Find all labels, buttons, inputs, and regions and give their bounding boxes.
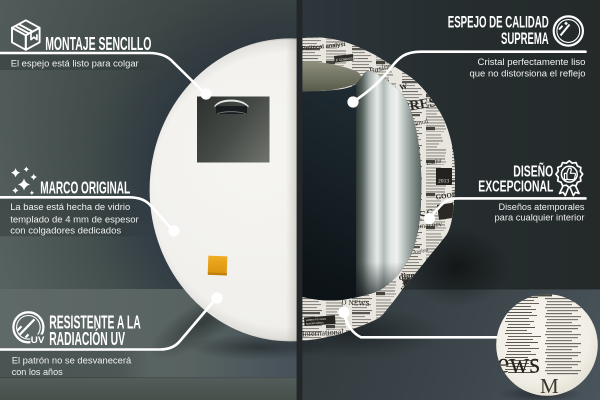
svg-text:RADIACIÓN UV: RADIACIÓN UV xyxy=(49,328,125,349)
svg-text:para cualquier interior: para cualquier interior xyxy=(495,213,586,224)
svg-text:con colgadores dedicados: con colgadores dedicados xyxy=(10,226,121,237)
svg-text:EXCEPCIONAL: EXCEPCIONAL xyxy=(478,179,553,196)
svg-text:con los años: con los años xyxy=(12,367,63,378)
svg-text:Diseños atemporales: Diseños atemporales xyxy=(499,202,585,213)
svg-text:UV: UV xyxy=(31,335,46,345)
svg-text:El patrón no se desvanecerá: El patrón no se desvanecerá xyxy=(12,356,132,367)
svg-text:2013: 2013 xyxy=(438,179,449,185)
svg-text:SUPREMA: SUPREMA xyxy=(501,30,549,48)
svg-text:M: M xyxy=(540,374,559,398)
svg-text:ESPEJO DE CALIDAD: ESPEJO DE CALIDAD xyxy=(448,14,549,32)
svg-text:templado de 4 mm de espesor: templado de 4 mm de espesor xyxy=(10,215,139,226)
svg-text:Cristal perfectamente liso: Cristal perfectamente liso xyxy=(478,57,586,68)
svg-text:DISEÑO: DISEÑO xyxy=(513,160,553,180)
svg-text:La base está hecha de vidrio: La base está hecha de vidrio xyxy=(10,202,130,213)
svg-text:MARCO ORIGINAL: MARCO ORIGINAL xyxy=(40,178,130,198)
svg-text:El espejo está listo para colg: El espejo está listo para colgar xyxy=(11,58,140,69)
svg-text:MONTAJE SENCILLO: MONTAJE SENCILLO xyxy=(45,34,151,54)
svg-text:que no distorsiona el reflejo: que no distorsiona el reflejo xyxy=(470,69,586,80)
